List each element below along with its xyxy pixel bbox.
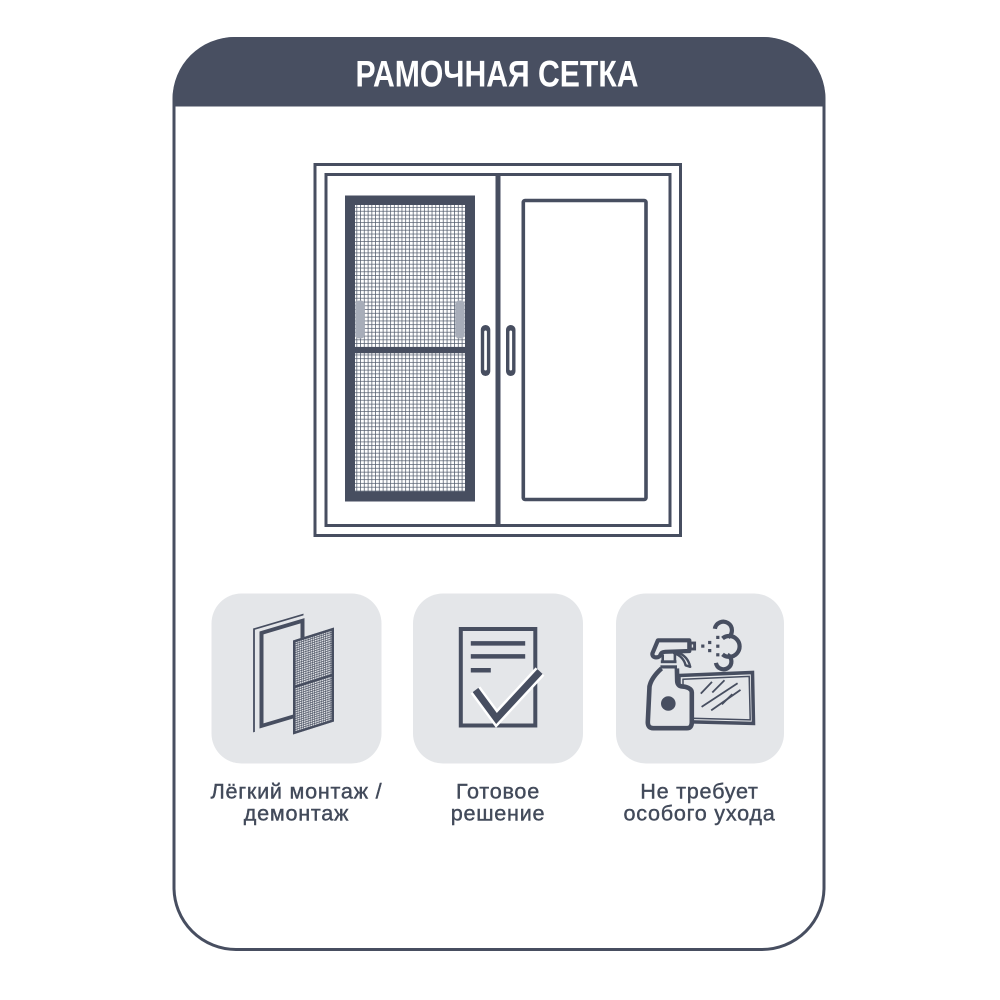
svg-text:особого ухода: особого ухода: [623, 801, 775, 826]
svg-text:РАМОЧНАЯ СЕТКА: РАМОЧНАЯ СЕТКА: [356, 54, 639, 95]
svg-text:демонтаж: демонтаж: [244, 801, 350, 826]
svg-text:решение: решение: [451, 801, 546, 826]
